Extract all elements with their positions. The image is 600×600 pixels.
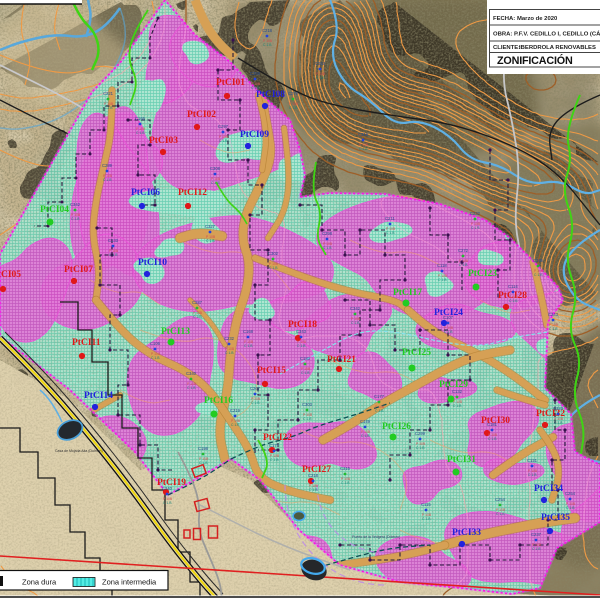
- svg-text:C 1.B: C 1.B: [303, 417, 312, 421]
- svg-text:C166: C166: [135, 116, 146, 121]
- svg-text:C 1.B: C 1.B: [549, 327, 558, 331]
- svg-text:C 1.B: C 1.B: [231, 423, 240, 427]
- svg-text:PtCI17: PtCI17: [393, 288, 422, 298]
- svg-text:PtCI09: PtCI09: [240, 130, 269, 140]
- svg-text:C 1.B: C 1.B: [534, 273, 543, 277]
- svg-text:PtCI16: PtCI16: [204, 396, 233, 406]
- svg-text:C254: C254: [565, 491, 576, 496]
- svg-text:C308: C308: [210, 166, 221, 171]
- svg-text:PtCI34: PtCI34: [534, 484, 563, 494]
- svg-text:C183: C183: [300, 356, 311, 361]
- svg-text:C 1.B: C 1.B: [323, 246, 332, 250]
- svg-text:C 1.B: C 1.B: [438, 278, 447, 282]
- svg-text:PtCI15: PtCI15: [257, 366, 286, 376]
- svg-text:C 1.B: C 1.B: [459, 263, 468, 267]
- svg-text:C 1.B: C 1.B: [136, 131, 145, 135]
- svg-text:C232: C232: [470, 211, 481, 216]
- svg-text:C232: C232: [224, 336, 235, 341]
- svg-text:C237: C237: [531, 532, 542, 537]
- svg-text:PtCI07: PtCI07: [64, 265, 93, 275]
- svg-text:C318: C318: [358, 132, 369, 137]
- svg-text:C 1.B: C 1.B: [316, 76, 325, 80]
- svg-text:C243: C243: [548, 312, 559, 317]
- svg-text:C106: C106: [150, 341, 161, 346]
- svg-text:PtCI01: PtCI01: [216, 78, 245, 88]
- svg-text:C169: C169: [533, 258, 544, 263]
- svg-text:PtCI21: PtCI21: [327, 355, 356, 365]
- svg-text:C 1.B: C 1.B: [532, 547, 541, 551]
- svg-text:C 1.B: C 1.B: [386, 231, 395, 235]
- svg-text:Marzo de 2020: Marzo de 2020: [517, 16, 558, 22]
- svg-text:C121: C121: [527, 458, 538, 463]
- svg-text:C 1.B: C 1.B: [416, 446, 425, 450]
- svg-text:C342: C342: [350, 306, 361, 311]
- svg-text:C 1.B: C 1.B: [104, 106, 113, 110]
- svg-text:C315: C315: [340, 466, 351, 471]
- svg-text:C198: C198: [198, 446, 209, 451]
- svg-text:C 1.B: C 1.B: [528, 473, 537, 477]
- svg-text:C303: C303: [302, 402, 313, 407]
- svg-text:C168: C168: [243, 329, 254, 334]
- svg-text:C287: C287: [192, 300, 203, 305]
- svg-text:C 1.B: C 1.B: [309, 488, 318, 492]
- svg-text:C340: C340: [162, 486, 173, 491]
- svg-text:C 1.B: C 1.B: [211, 181, 220, 185]
- svg-text:C323: C323: [553, 406, 564, 411]
- svg-text:C 1.B: C 1.B: [359, 147, 368, 151]
- svg-text:OBRA:: OBRA:: [493, 32, 512, 38]
- svg-text:PtCI03: PtCI03: [149, 136, 178, 146]
- svg-text:C359: C359: [250, 71, 261, 76]
- svg-text:C115: C115: [421, 502, 431, 507]
- svg-text:C 1.B: C 1.B: [151, 356, 160, 360]
- svg-text:P.F.V. CEDILLO I, CEDILLO (CÁC: P.F.V. CEDILLO I, CEDILLO (CÁCERES): [514, 31, 600, 38]
- svg-text:C 1.B: C 1.B: [375, 409, 384, 413]
- svg-text:C149: C149: [360, 419, 371, 424]
- svg-text:C 1.B: C 1.B: [341, 481, 350, 485]
- svg-text:C 1.B: C 1.B: [193, 315, 202, 319]
- svg-text:C133: C133: [108, 238, 119, 243]
- svg-text:C107: C107: [443, 315, 454, 320]
- svg-text:C219: C219: [230, 408, 241, 413]
- svg-text:C 1.B: C 1.B: [289, 106, 298, 110]
- svg-text:C 1.B: C 1.B: [351, 321, 360, 325]
- svg-text:C 1.B: C 1.B: [251, 401, 260, 405]
- svg-text:IBERDROLA RENOVABLES: IBERDROLA RENOVABLES: [519, 45, 596, 51]
- svg-text:C 1.B: C 1.B: [453, 404, 462, 408]
- svg-text:C177: C177: [269, 443, 280, 448]
- svg-text:FECHA:: FECHA:: [493, 16, 515, 22]
- svg-text:PtCI26: PtCI26: [382, 422, 411, 432]
- svg-text:C 1.B: C 1.B: [206, 239, 215, 243]
- svg-text:C 1.B: C 1.B: [496, 512, 505, 516]
- svg-text:C 1.B: C 1.B: [244, 344, 253, 348]
- svg-text:C 1.B: C 1.B: [488, 437, 497, 441]
- svg-text:PtCI14: PtCI14: [84, 391, 113, 401]
- svg-text:Puerto de la Vedgera (Dolmen): Puerto de la Vedgera (Dolmen): [352, 535, 400, 539]
- svg-text:C218: C218: [308, 473, 319, 478]
- svg-text:C298: C298: [322, 231, 333, 236]
- svg-text:PtCI35: PtCI35: [541, 513, 570, 523]
- svg-text:C 1.B: C 1.B: [219, 139, 228, 143]
- svg-text:C 1.B: C 1.B: [566, 506, 575, 510]
- svg-text:C 1.B: C 1.B: [554, 421, 563, 425]
- svg-text:PtCI25: PtCI25: [402, 348, 431, 358]
- svg-text:C299: C299: [415, 431, 426, 436]
- svg-text:C 1.B: C 1.B: [509, 299, 518, 303]
- svg-text:C 1.B: C 1.B: [297, 344, 306, 348]
- svg-text:C 1.B: C 1.B: [270, 458, 279, 462]
- svg-text:PtCI22: PtCI22: [263, 433, 292, 443]
- svg-text:C132: C132: [452, 389, 463, 394]
- svg-text:PtCI02: PtCI02: [187, 110, 216, 120]
- svg-text:PtCI10: PtCI10: [138, 258, 167, 268]
- svg-text:C340: C340: [186, 371, 197, 376]
- svg-text:C 1.B: C 1.B: [471, 226, 480, 230]
- svg-text:PtCI31: PtCI31: [447, 455, 476, 465]
- svg-text:C327: C327: [205, 224, 216, 229]
- svg-text:C 1.B: C 1.B: [422, 517, 431, 521]
- svg-text:PtCI13: PtCI13: [161, 327, 190, 337]
- svg-text:C343: C343: [296, 329, 307, 334]
- svg-text:C 1.B: C 1.B: [71, 217, 80, 221]
- svg-text:C 1.B: C 1.B: [301, 371, 310, 375]
- svg-text:Zona intermedia: Zona intermedia: [102, 578, 157, 587]
- svg-text:C177: C177: [374, 394, 385, 399]
- svg-text:Zona dura: Zona dura: [22, 578, 57, 587]
- svg-text:Casa de Mojada Alta (Dolmen): Casa de Mojada Alta (Dolmen): [55, 449, 103, 453]
- svg-text:C 1.B: C 1.B: [199, 461, 208, 465]
- svg-text:C289: C289: [102, 163, 113, 168]
- svg-text:C 1.B: C 1.B: [187, 386, 196, 390]
- svg-text:PtCI06: PtCI06: [131, 188, 160, 198]
- svg-text:C254: C254: [495, 497, 506, 502]
- svg-text:C 1.B: C 1.B: [109, 253, 118, 257]
- svg-text:C302: C302: [268, 251, 279, 256]
- svg-text:CLIENTE:: CLIENTE:: [493, 45, 520, 51]
- svg-text:C221: C221: [103, 91, 114, 96]
- svg-text:C118: C118: [437, 263, 447, 268]
- svg-text:C353: C353: [315, 61, 326, 66]
- svg-text:PtCI33: PtCI33: [452, 528, 481, 538]
- svg-text:PtCI23: PtCI23: [468, 269, 497, 279]
- svg-text:ZONIFICACIÓN: ZONIFICACIÓN: [497, 54, 573, 67]
- svg-text:C 1.B: C 1.B: [263, 43, 272, 47]
- svg-text:C181: C181: [487, 422, 498, 427]
- svg-text:PtCI04: PtCI04: [40, 205, 69, 215]
- svg-text:C272: C272: [458, 248, 469, 253]
- svg-text:C211: C211: [385, 216, 395, 221]
- svg-text:C 1.B: C 1.B: [444, 330, 453, 334]
- svg-text:PtCI08: PtCI08: [256, 90, 285, 100]
- svg-text:C114: C114: [508, 284, 518, 289]
- svg-text:PtCI05: PtCI05: [0, 270, 21, 280]
- svg-text:PtCI11: PtCI11: [72, 338, 101, 348]
- svg-text:C 1.B: C 1.B: [251, 86, 260, 90]
- svg-text:C 1.B: C 1.B: [225, 351, 234, 355]
- svg-text:C279: C279: [288, 91, 299, 96]
- svg-text:C 1.B: C 1.B: [103, 178, 112, 182]
- svg-text:C342: C342: [70, 202, 81, 207]
- svg-text:C267: C267: [250, 386, 261, 391]
- svg-text:C 1.B: C 1.B: [269, 266, 278, 270]
- svg-text:C 1.B: C 1.B: [163, 501, 172, 505]
- svg-text:C218: C218: [262, 28, 273, 33]
- svg-text:PtCI12: PtCI12: [178, 188, 207, 198]
- svg-text:C 1.B: C 1.B: [361, 434, 370, 438]
- svg-text:C297: C297: [218, 124, 229, 129]
